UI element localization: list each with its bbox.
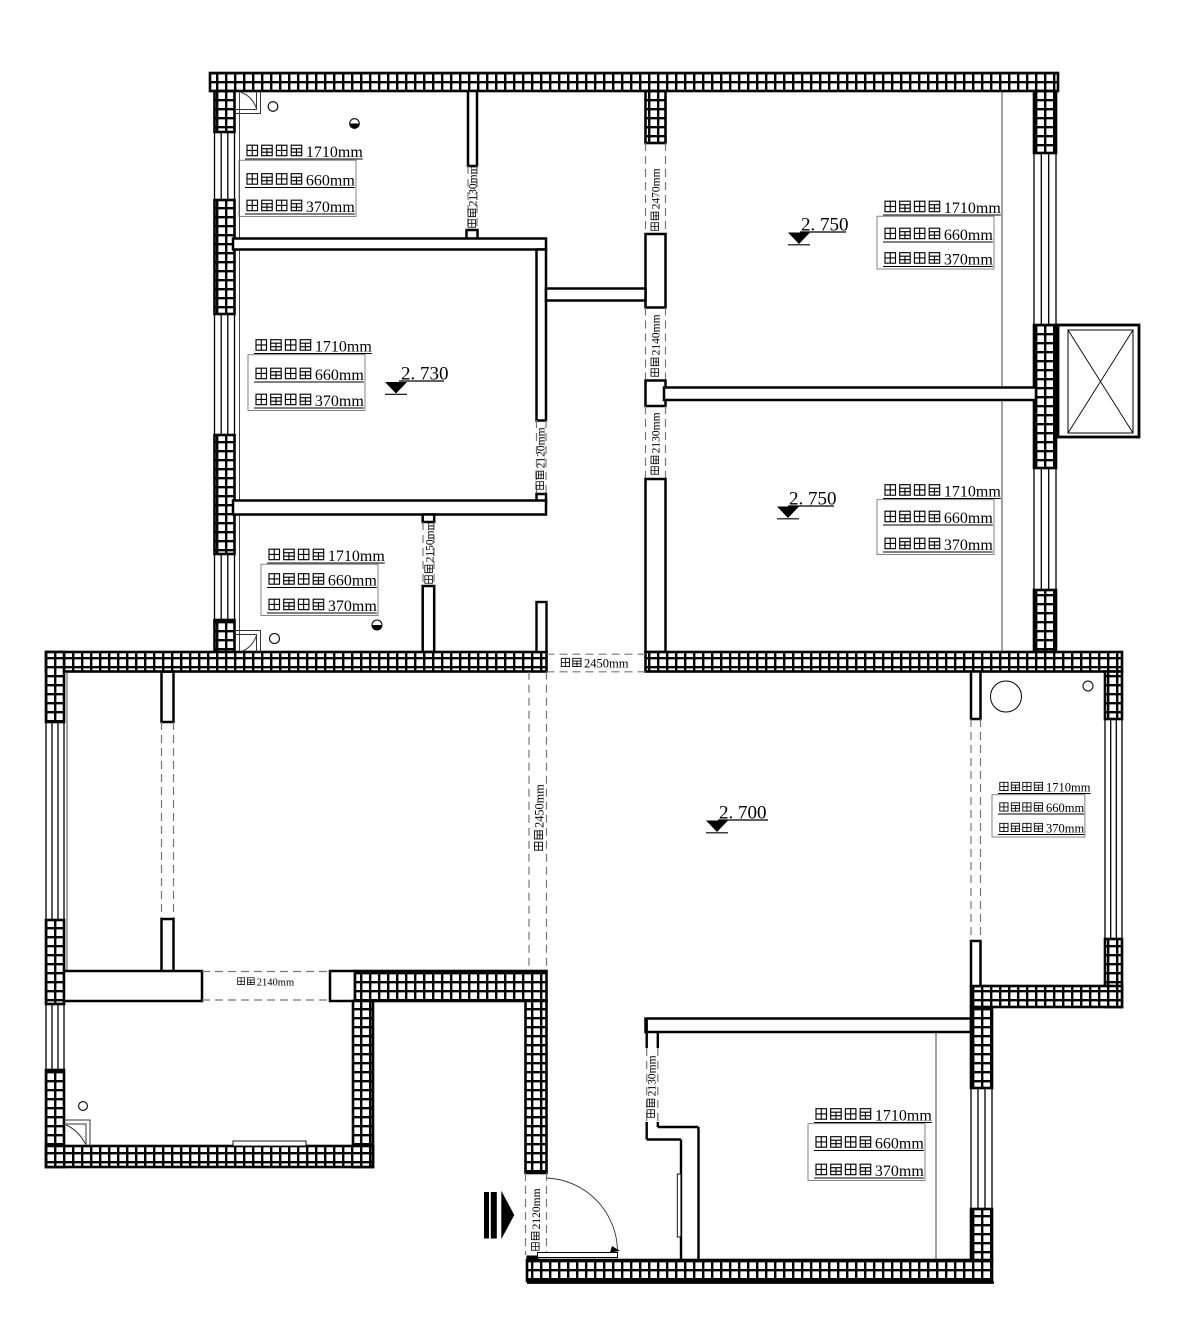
svg-text:370mm: 370mm (1046, 822, 1084, 836)
svg-text:370mm: 370mm (306, 199, 355, 216)
svg-text:2450mm: 2450mm (584, 657, 629, 671)
svg-text:660mm: 660mm (875, 1136, 924, 1153)
svg-text:2120mm: 2120mm (531, 1188, 543, 1229)
svg-text:1710mm: 1710mm (875, 1108, 932, 1125)
svg-text:660mm: 660mm (328, 573, 377, 590)
svg-text:2120mm: 2120mm (536, 427, 548, 468)
svg-text:2140mm: 2140mm (257, 978, 294, 989)
svg-text:1710mm: 1710mm (944, 200, 1001, 217)
svg-text:2150mm: 2150mm (424, 521, 436, 562)
svg-text:2450mm: 2450mm (533, 784, 547, 828)
svg-text:660mm: 660mm (306, 173, 355, 190)
svg-text:1710mm: 1710mm (1046, 781, 1091, 795)
svg-text:660mm: 660mm (1046, 801, 1084, 815)
svg-text:660mm: 660mm (944, 510, 993, 527)
svg-text:2130mm: 2130mm (647, 1055, 659, 1096)
svg-text:1710mm: 1710mm (328, 548, 385, 565)
svg-text:370mm: 370mm (875, 1163, 924, 1180)
svg-text:2140mm: 2140mm (651, 314, 663, 355)
svg-text:370mm: 370mm (328, 598, 377, 615)
svg-text:1710mm: 1710mm (944, 484, 1001, 501)
svg-text:660mm: 660mm (315, 367, 364, 384)
svg-text:370mm: 370mm (315, 393, 364, 410)
svg-text:660mm: 660mm (944, 227, 993, 244)
svg-text:1710mm: 1710mm (315, 339, 372, 356)
svg-text:370mm: 370mm (944, 537, 993, 554)
svg-text:1710mm: 1710mm (306, 144, 363, 161)
svg-text:370mm: 370mm (944, 252, 993, 269)
svg-text:2470mm: 2470mm (651, 168, 663, 209)
svg-text:2130mm: 2130mm (468, 165, 480, 206)
svg-text:2130mm: 2130mm (651, 412, 663, 453)
